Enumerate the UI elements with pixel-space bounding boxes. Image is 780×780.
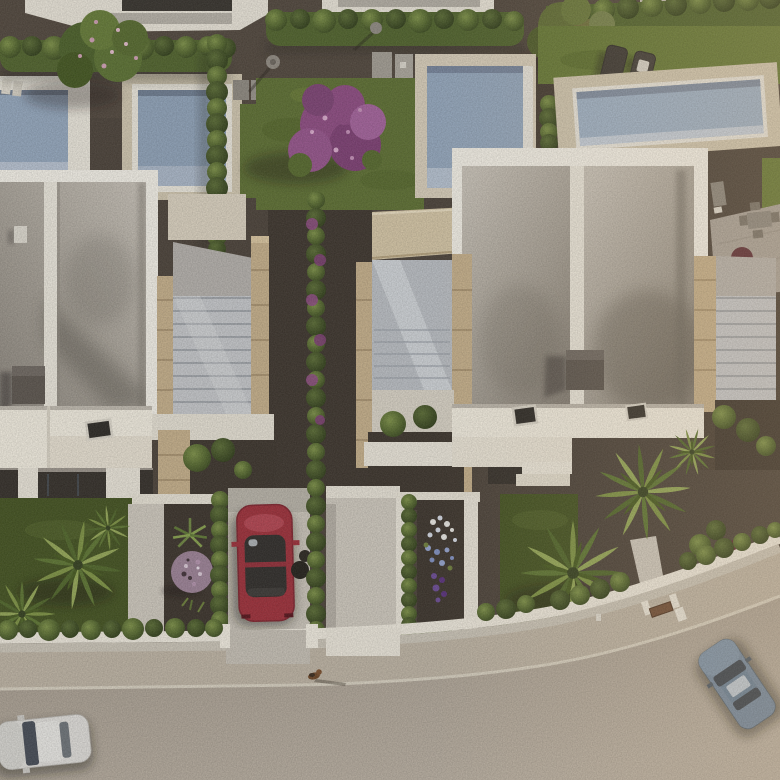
aerial-render (0, 0, 780, 780)
evening-light (0, 0, 780, 780)
scene-canvas (0, 0, 780, 780)
